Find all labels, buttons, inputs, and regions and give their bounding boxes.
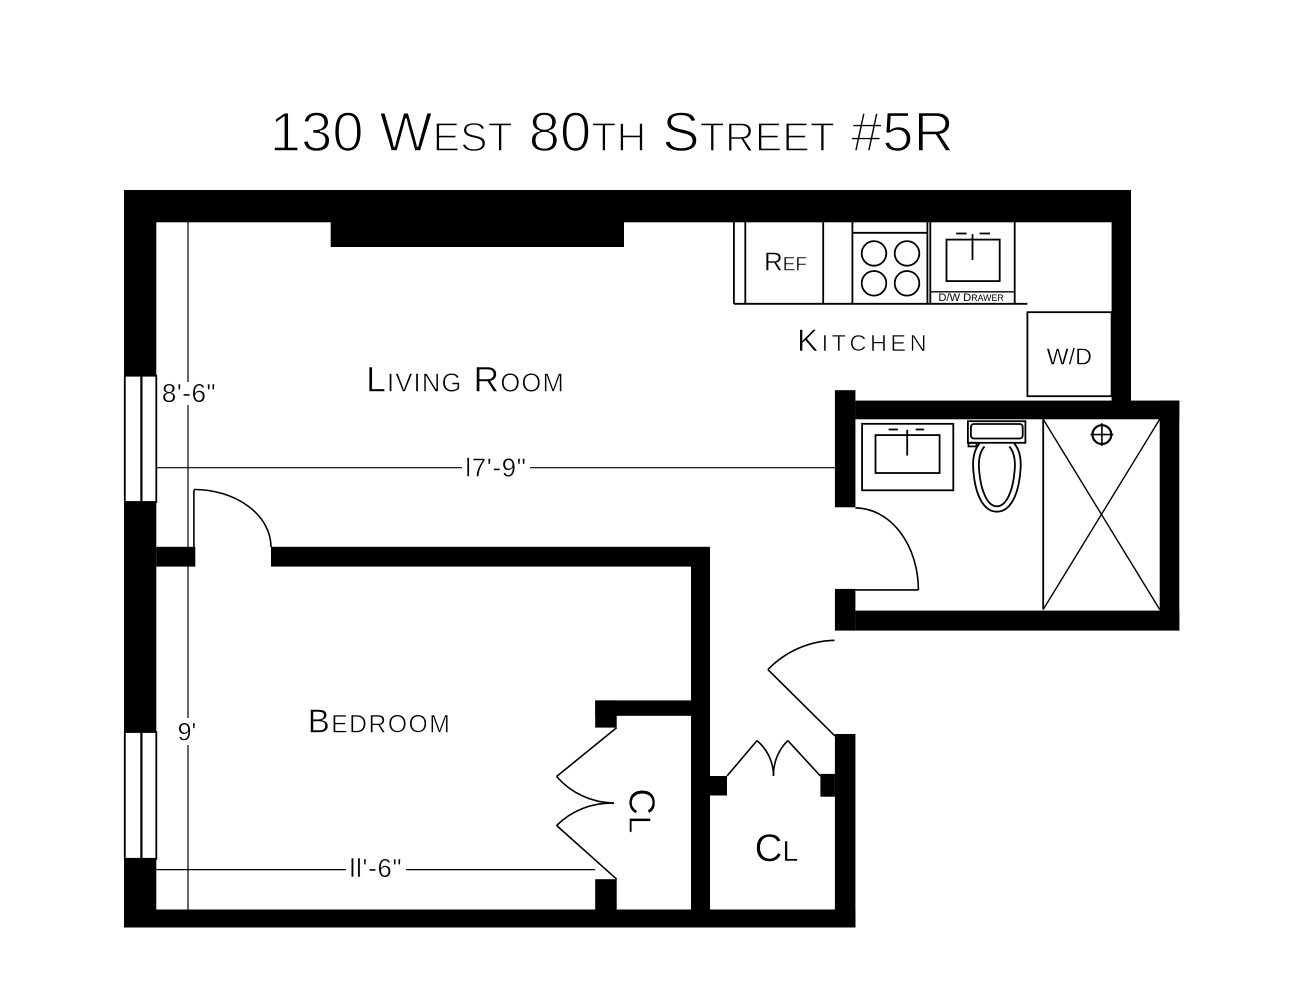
svg-text:9': 9' [178, 719, 197, 747]
svg-text:8'-6": 8'-6" [162, 378, 216, 408]
svg-text:D/W DRAWER: D/W DRAWER [938, 292, 1003, 304]
svg-text:l7'-9": l7'-9" [465, 455, 526, 483]
svg-text:W/D: W/D [1047, 344, 1092, 370]
svg-text:ll'-6": ll'-6" [350, 855, 403, 883]
svg-text:CL: CL [622, 789, 663, 835]
